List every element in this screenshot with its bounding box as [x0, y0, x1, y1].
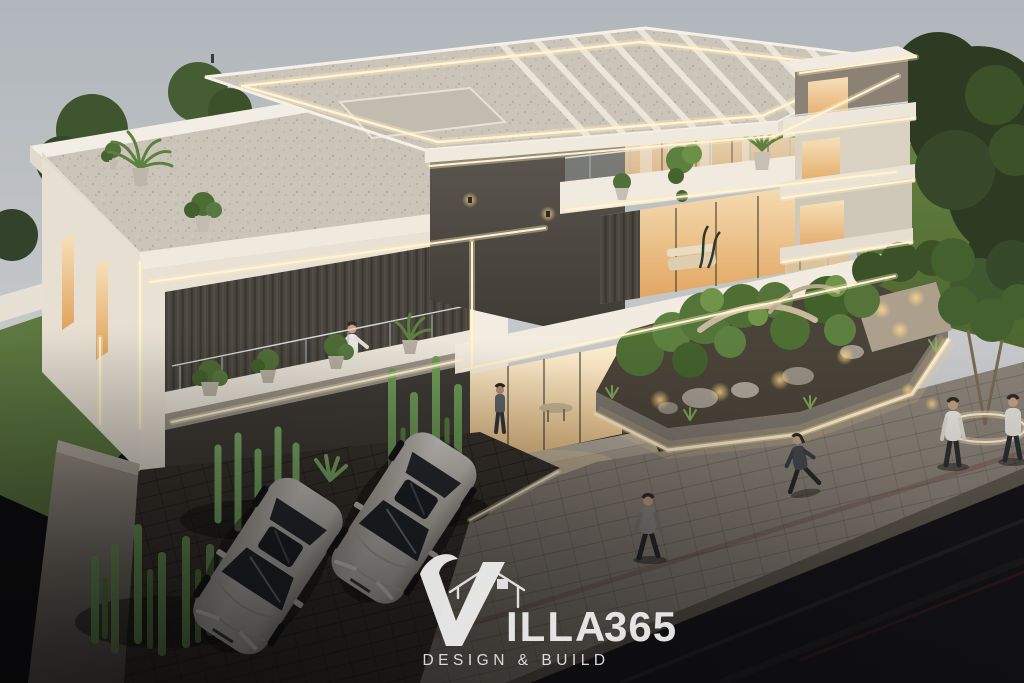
villa-render-canvas: ILLA 365 DESIGN & BUILD	[0, 0, 1024, 683]
logo-tagline: DESIGN & BUILD	[422, 652, 609, 669]
architectural-render: ILLA 365 DESIGN & BUILD	[0, 0, 1024, 683]
logo-text-number: 365	[604, 603, 677, 650]
logo-text-rest: ILLA	[506, 603, 607, 650]
tiny-roof-figure	[211, 54, 214, 63]
